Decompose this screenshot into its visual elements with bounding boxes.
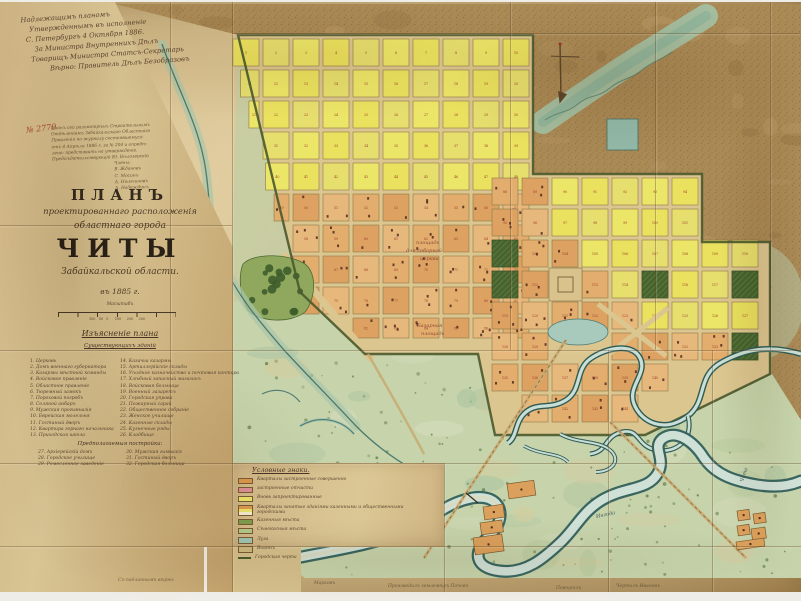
svg-text:51: 51 xyxy=(334,206,338,210)
sign-label: Казенныя мѣста xyxy=(257,518,299,523)
fold-seam xyxy=(712,350,713,592)
sign-label: Кварталы застроенные совершенно xyxy=(257,477,346,482)
svg-text:8: 8 xyxy=(455,51,457,55)
signs-rows: Кварталы застроенные совершеннозастроенн… xyxy=(238,477,438,562)
svg-text:13: 13 xyxy=(304,82,308,86)
svg-text:39: 39 xyxy=(514,144,518,148)
margin-note: Съ подлиннымъ вѣрно: xyxy=(118,578,175,583)
proposed-column-right: 30. Мужская гимназія31. Гостиный дворъ32… xyxy=(126,450,221,468)
city-pond xyxy=(548,319,608,345)
fold-seam xyxy=(770,2,771,350)
svg-text:41: 41 xyxy=(304,175,308,179)
svg-text:28: 28 xyxy=(454,113,458,117)
svg-text:112: 112 xyxy=(532,283,538,287)
svg-text:59: 59 xyxy=(334,237,338,241)
svg-text:34: 34 xyxy=(364,144,368,148)
map-label: площадь xyxy=(421,331,444,337)
text-line: 26. Кладбище xyxy=(120,433,228,439)
svg-text:101: 101 xyxy=(682,221,688,225)
svg-text:33: 33 xyxy=(334,144,338,148)
svg-text:139: 139 xyxy=(622,376,628,380)
svg-text:29: 29 xyxy=(484,113,488,117)
svg-text:114: 114 xyxy=(622,283,628,287)
svg-text:27: 27 xyxy=(424,113,428,117)
svg-text:21: 21 xyxy=(252,113,256,117)
svg-text:119: 119 xyxy=(502,314,508,318)
svg-text:142: 142 xyxy=(562,407,568,411)
svg-text:88: 88 xyxy=(503,190,507,194)
text-line: 12. Квартира горнаго начальника xyxy=(30,427,118,433)
svg-text:4: 4 xyxy=(335,51,337,55)
svg-text:63: 63 xyxy=(454,237,458,241)
svg-text:23: 23 xyxy=(304,113,308,117)
plan-subtitle-1: проектированнаго расположенія xyxy=(18,207,222,217)
sign-label: Луга xyxy=(257,537,268,542)
legend-column-right: 14. Казачьи казармы15. Артиллерійскіе ск… xyxy=(120,359,228,439)
svg-text:7: 7 xyxy=(425,51,427,55)
svg-text:140: 140 xyxy=(652,376,658,380)
year-line: въ 1885 г. xyxy=(60,287,180,296)
svg-text:15: 15 xyxy=(364,82,368,86)
fold-seam xyxy=(608,350,609,592)
svg-text:117: 117 xyxy=(712,283,718,287)
svg-text:133: 133 xyxy=(712,345,718,349)
svg-text:37: 37 xyxy=(454,144,458,148)
svg-text:38: 38 xyxy=(484,144,488,148)
svg-text:104: 104 xyxy=(562,252,568,256)
svg-text:89: 89 xyxy=(533,190,537,194)
margin-note: Производилъ землемѣръ Поповъ xyxy=(388,584,469,589)
svg-text:92: 92 xyxy=(623,190,627,194)
svg-text:64: 64 xyxy=(484,237,488,241)
fold-seam xyxy=(232,33,801,34)
sign-swatch xyxy=(238,557,251,559)
sign-swatch xyxy=(238,546,253,553)
sign-row: Городская черта xyxy=(238,555,438,560)
svg-text:31: 31 xyxy=(274,144,278,148)
svg-text:68: 68 xyxy=(364,268,368,272)
svg-text:50: 50 xyxy=(304,206,308,210)
svg-text:128: 128 xyxy=(502,345,508,349)
svg-text:110: 110 xyxy=(742,252,748,256)
svg-text:35: 35 xyxy=(394,144,398,148)
proposed-column-left: 27. Архіерейскій домъ28. Городское учили… xyxy=(38,450,123,468)
map-label: для соборной xyxy=(406,248,442,254)
scale-word: Масштабъ xyxy=(75,302,165,307)
map-label: площадь xyxy=(416,240,439,246)
svg-text:122: 122 xyxy=(592,314,598,318)
svg-text:67: 67 xyxy=(334,268,338,272)
svg-text:96: 96 xyxy=(533,221,537,225)
sign-label: Кварталы занятые зданіями казенными и об… xyxy=(257,505,407,515)
svg-text:40: 40 xyxy=(275,175,279,179)
svg-text:24: 24 xyxy=(334,113,338,117)
svg-text:126: 126 xyxy=(712,314,718,318)
svg-text:82: 82 xyxy=(364,326,368,330)
svg-text:10: 10 xyxy=(514,51,518,55)
region-line: Забайкальской области. xyxy=(25,267,215,277)
svg-text:70: 70 xyxy=(424,268,428,272)
svg-text:6: 6 xyxy=(395,51,397,55)
svg-text:54: 54 xyxy=(424,206,428,210)
svg-text:69: 69 xyxy=(394,268,398,272)
svg-text:22: 22 xyxy=(274,113,278,117)
svg-text:105: 105 xyxy=(592,252,598,256)
svg-text:76: 76 xyxy=(364,299,368,303)
svg-text:25: 25 xyxy=(364,113,368,117)
sign-row: Вновь запроектированные xyxy=(238,495,438,502)
certification-note: Планъ сей разсмотрѣнъ СтроительнымъОтдѣл… xyxy=(51,122,189,195)
svg-text:132: 132 xyxy=(682,345,688,349)
svg-text:125: 125 xyxy=(682,314,688,318)
sign-row: Сѣнокосныя мѣста xyxy=(238,527,438,534)
sign-label: Сѣнокосныя мѣста xyxy=(257,527,306,532)
sign-row: Луга xyxy=(238,537,438,544)
svg-text:136: 136 xyxy=(532,376,538,380)
svg-text:18: 18 xyxy=(454,82,458,86)
text-line: 32. Городская больница xyxy=(126,462,221,468)
fold-seam xyxy=(232,2,233,592)
svg-text:78: 78 xyxy=(424,299,428,303)
fold-seam xyxy=(655,2,656,350)
svg-text:86: 86 xyxy=(484,326,488,330)
svg-text:32: 32 xyxy=(304,144,308,148)
legend-column-left: 1. Церковь2. Домъ военнаго губернатора3.… xyxy=(30,359,118,439)
map-label: Базарная xyxy=(417,323,442,329)
svg-text:116: 116 xyxy=(682,283,688,287)
svg-text:9: 9 xyxy=(485,51,487,55)
svg-text:79: 79 xyxy=(454,299,458,303)
svg-text:90: 90 xyxy=(563,190,567,194)
svg-text:98: 98 xyxy=(593,221,597,225)
fold-seam xyxy=(444,463,445,592)
signs-title: Условные знаки. xyxy=(252,466,310,474)
svg-text:99: 99 xyxy=(623,221,627,225)
fold-seam xyxy=(0,350,801,351)
svg-text:20: 20 xyxy=(514,82,518,86)
svg-text:97: 97 xyxy=(563,221,567,225)
svg-text:14: 14 xyxy=(334,82,338,86)
legend-subtitle: Существующихъ зданій xyxy=(63,343,177,349)
plan-subtitle-2: областнаго города xyxy=(30,221,210,231)
svg-text:58: 58 xyxy=(304,237,308,241)
svg-text:120: 120 xyxy=(532,314,538,318)
svg-text:19: 19 xyxy=(484,82,488,86)
svg-text:1: 1 xyxy=(245,51,247,55)
svg-text:108: 108 xyxy=(682,252,688,256)
panel-gap xyxy=(204,547,207,592)
sign-label: застроенные отчасти xyxy=(257,486,313,491)
sign-swatch xyxy=(238,478,253,485)
svg-text:127: 127 xyxy=(742,314,748,318)
sign-swatch xyxy=(238,505,253,516)
sign-row: Кварталы занятые зданіями казенными и об… xyxy=(238,505,438,517)
scale-labels: 100 50 0 100 200 300 xyxy=(54,317,180,321)
svg-text:44: 44 xyxy=(394,175,398,179)
svg-text:56: 56 xyxy=(484,206,488,210)
svg-text:46: 46 xyxy=(454,175,458,179)
svg-text:75: 75 xyxy=(334,299,338,303)
svg-text:60: 60 xyxy=(364,237,368,241)
city-name: ЧИТЫ xyxy=(40,234,200,263)
legend-title: Изъясненіе плана xyxy=(60,329,180,338)
sign-row: застроенные отчасти xyxy=(238,486,438,493)
svg-text:30: 30 xyxy=(514,113,518,117)
text-line: 29. Ремесленное заведеніе xyxy=(38,462,123,468)
svg-text:42: 42 xyxy=(334,175,338,179)
sign-label: Выгонъ xyxy=(257,546,275,551)
sign-swatch xyxy=(238,519,253,526)
sign-row: Казенныя мѣста xyxy=(238,518,438,525)
proposed-title: Предполагаемыя постройки: xyxy=(45,441,195,447)
sign-row: Кварталы застроенные совершенно xyxy=(238,477,438,484)
market-square xyxy=(549,268,582,301)
fold-seam xyxy=(510,2,511,350)
svg-text:91: 91 xyxy=(593,190,597,194)
svg-text:71: 71 xyxy=(454,268,458,272)
svg-text:53: 53 xyxy=(394,206,398,210)
margin-note: Повѣрялъ xyxy=(556,586,581,591)
svg-text:16: 16 xyxy=(394,82,398,86)
svg-text:47: 47 xyxy=(484,175,488,179)
svg-text:123: 123 xyxy=(622,314,628,318)
svg-text:94: 94 xyxy=(683,190,687,194)
svg-text:5: 5 xyxy=(365,51,367,55)
svg-text:26: 26 xyxy=(394,113,398,117)
svg-text:17: 17 xyxy=(424,82,428,86)
svg-text:113: 113 xyxy=(592,283,598,287)
svg-text:106: 106 xyxy=(622,252,628,256)
svg-text:52: 52 xyxy=(364,206,368,210)
cemetery-plot xyxy=(607,119,638,150)
svg-text:43: 43 xyxy=(364,175,368,179)
svg-text:61: 61 xyxy=(394,237,398,241)
svg-text:135: 135 xyxy=(502,376,508,380)
sign-label: Городская черта xyxy=(255,555,297,560)
svg-text:129: 129 xyxy=(532,345,538,349)
svg-text:137: 137 xyxy=(562,376,568,380)
svg-text:77: 77 xyxy=(394,299,398,303)
scanned-map-page: 1234567891011121314151617181920212223242… xyxy=(0,0,801,601)
svg-text:55: 55 xyxy=(454,206,458,210)
plan-word: ПЛАНЪ xyxy=(40,186,200,204)
map-label: церкви xyxy=(420,256,439,262)
svg-text:2: 2 xyxy=(275,51,277,55)
margin-note: Чертилъ Ивановъ xyxy=(616,584,660,589)
sign-row: Выгонъ xyxy=(238,546,438,553)
svg-text:3: 3 xyxy=(305,51,307,55)
svg-text:109: 109 xyxy=(712,252,718,256)
sign-swatch xyxy=(238,496,253,503)
sign-swatch xyxy=(238,537,253,544)
svg-text:12: 12 xyxy=(274,82,278,86)
sign-label: Вновь запроектированные xyxy=(257,495,322,500)
svg-text:80: 80 xyxy=(484,299,488,303)
svg-text:36: 36 xyxy=(424,144,428,148)
svg-text:95: 95 xyxy=(503,221,507,225)
svg-text:45: 45 xyxy=(424,175,428,179)
sign-swatch xyxy=(238,528,253,535)
margin-note: Марковъ xyxy=(314,581,335,586)
text-line: 13. Приходская школа xyxy=(30,433,118,439)
svg-text:143: 143 xyxy=(592,407,598,411)
sign-swatch xyxy=(238,487,253,494)
